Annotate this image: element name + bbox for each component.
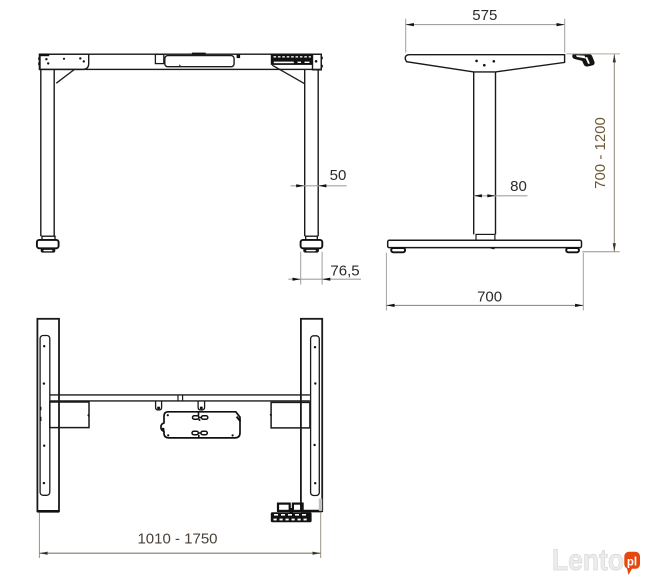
svg-text:575: 575 [472,7,497,24]
svg-text:1010 - 1750: 1010 - 1750 [137,530,217,547]
svg-text:76,5: 76,5 [330,262,359,279]
svg-text:80: 80 [510,178,527,195]
svg-text:700: 700 [477,289,502,306]
svg-text:700 - 1200: 700 - 1200 [592,117,609,189]
svg-text:Lento: Lento [552,544,624,577]
svg-text:pl: pl [627,556,637,568]
svg-text:50: 50 [330,167,347,184]
